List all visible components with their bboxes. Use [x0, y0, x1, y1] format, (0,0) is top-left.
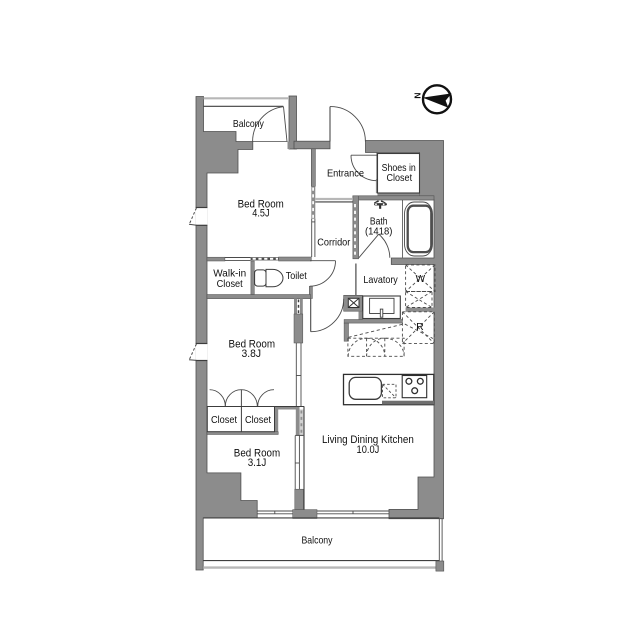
svg-text:N: N [413, 93, 423, 99]
svg-text:Entrance: Entrance [327, 167, 364, 179]
svg-text:4.5J: 4.5J [252, 207, 269, 219]
svg-text:(1418): (1418) [365, 227, 392, 238]
svg-text:Closet: Closet [245, 415, 271, 426]
svg-text:Shoes in: Shoes in [382, 163, 416, 174]
svg-text:Toilet: Toilet [286, 271, 307, 282]
svg-text:Balcony: Balcony [302, 535, 334, 547]
svg-text:R: R [416, 321, 424, 333]
svg-text:Balcony: Balcony [233, 118, 265, 130]
svg-text:10.0J: 10.0J [357, 444, 380, 456]
svg-text:3.8J: 3.8J [242, 348, 262, 360]
svg-text:Closet: Closet [211, 415, 237, 426]
svg-text:Lavatory: Lavatory [363, 274, 398, 286]
svg-text:Closet: Closet [217, 279, 243, 290]
svg-text:W: W [416, 274, 426, 285]
svg-text:3.1J: 3.1J [248, 457, 267, 469]
svg-text:Closet: Closet [387, 173, 413, 184]
svg-text:Corridor: Corridor [317, 236, 350, 248]
